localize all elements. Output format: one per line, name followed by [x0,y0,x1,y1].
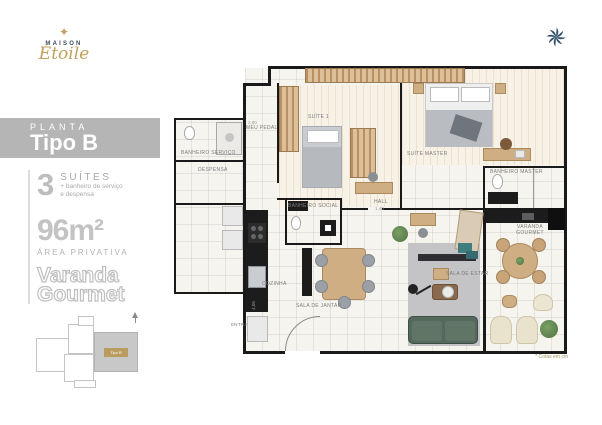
fridge [247,316,268,342]
room-label-hall: HALL [374,200,388,206]
wall [483,208,486,354]
cooktop [248,223,266,243]
room-label-banheiro-servico: BANHEIRO SERVIÇO [181,151,236,157]
toilet [492,174,503,189]
bed-master [425,83,493,147]
keyplan-unit-label: Tipo B [104,348,128,357]
toilet-social [291,216,301,230]
suites-count: 3 [37,170,54,200]
dining-chair [315,280,328,293]
room-label-cozinha: COZINHA [262,282,287,288]
office-desk [410,213,436,226]
wardrobe-suite1 [350,128,376,178]
suites-note-1: + banheiro de serviço [60,183,122,191]
sofa [408,316,478,344]
wall [483,166,485,208]
toilet-servico [184,126,195,140]
wall [174,203,245,205]
churrasqueira [548,208,565,230]
room-label-banheiro-master: BANHEIRO MASTER [490,170,543,176]
wall [340,208,368,210]
room-label-despensa: DESPENSA [198,168,228,174]
plan-footnote: * Cotas em cm [535,354,568,360]
keyplan-core-top [68,324,94,354]
entrance-opening [285,351,320,354]
office-chair [418,228,428,238]
wall [243,83,271,86]
keyplan-core-bottom [64,354,94,382]
floor-plan: ENTRADA [170,58,582,364]
panel-divider [28,170,30,304]
plant [540,320,558,338]
gourmet-chair [532,270,546,284]
dim-cozinha: 4,05 [251,301,256,310]
gourmet-chair [532,238,546,252]
bed-suite1 [302,126,342,188]
desk-suite1 [355,182,393,194]
washer [222,206,243,226]
burner [258,234,263,239]
room-label-meu-pedal: MEU PEDAL [246,126,278,132]
nightstand [495,83,506,94]
wall [340,198,342,245]
pillow [461,87,490,102]
dining-table [322,248,366,300]
pillow [307,130,339,143]
pinwheel-logo-icon [543,24,569,50]
drain [325,225,331,231]
wall [285,243,342,245]
wall [483,166,565,168]
gourmet-chair [496,238,510,252]
feature-varanda-gourmet: Varanda Gourmet [37,266,125,304]
table-plant [516,257,524,265]
feature-line2: Gourmet [37,285,125,304]
gourmet-chair [496,270,510,284]
wall [174,292,245,294]
suites-label: SUÍTES [60,172,122,183]
dining-chair [362,254,375,267]
wall [174,160,245,162]
sofa-cushion [412,321,442,341]
suites-note-2: e despensa [60,191,122,199]
spec-area: 96m² ÁREA PRIVATIVA [37,216,129,257]
laptop [515,150,525,158]
burner [251,234,256,239]
wall [400,66,402,208]
room-label-varanda-gourmet: VARANDA GOURMET [510,225,550,236]
keyplan: Tipo B [28,310,146,392]
pillow [430,87,459,102]
page: ✦ MAISON Étoile PLANTA Tipo B 3 SUÍTES [0,0,602,425]
room-label-sala-jantar: SALA DE JANTAR [296,304,342,310]
area-label: ÁREA PRIVATIVA [37,248,129,257]
burner [251,226,256,231]
vanity-master [488,192,518,204]
lounge-chair [490,316,512,344]
wardrobe-top [305,68,465,83]
room-label-suite-master: SUÍTE MASTER [407,152,448,158]
dining-chair [362,280,375,293]
dining-chair [315,254,328,267]
wall [174,118,245,120]
gourmet-counter [486,210,548,223]
nightstand [413,83,424,94]
blanket [303,147,341,187]
room-label-sala-estar: SALA DE ESTAR [446,272,488,278]
dim-hall: 1,40 [375,206,384,211]
area-value: 96m² [37,216,129,246]
brand-script: Étoile [24,47,104,62]
tray [442,286,454,298]
desk-chair [500,138,512,150]
wine-cabinet [302,248,312,296]
brand-logo: ✦ MAISON Étoile [24,26,104,62]
room-label-suite-1: SUÍTE 1 [308,115,329,121]
room-label-banheiro-social: BANHEIRO SOCIAL [288,204,338,210]
cushion [466,251,478,259]
desk-chair [368,172,378,182]
shower-social [320,220,336,236]
gourmet-sink [522,213,534,220]
pouf [502,295,517,308]
armchair [533,294,553,311]
keyplan-jut-bottom [74,380,96,388]
plan-type-title: Tipo B [30,132,160,154]
keyplan-jut-top [78,316,94,326]
plant [392,226,408,242]
wall [285,198,287,245]
lounge-chair [516,316,538,344]
laundry-tank [222,230,243,250]
drain [225,133,234,142]
plan-type-band: PLANTA Tipo B [0,118,160,158]
star-icon: ✦ [24,26,104,38]
wall [174,118,176,294]
spec-suites: 3 SUÍTES + banheiro de serviço e despens… [37,170,123,200]
sofa-cushion [445,321,475,341]
burner [258,226,263,231]
north-arrow-stem [135,318,136,323]
closet-corridor [279,86,299,152]
